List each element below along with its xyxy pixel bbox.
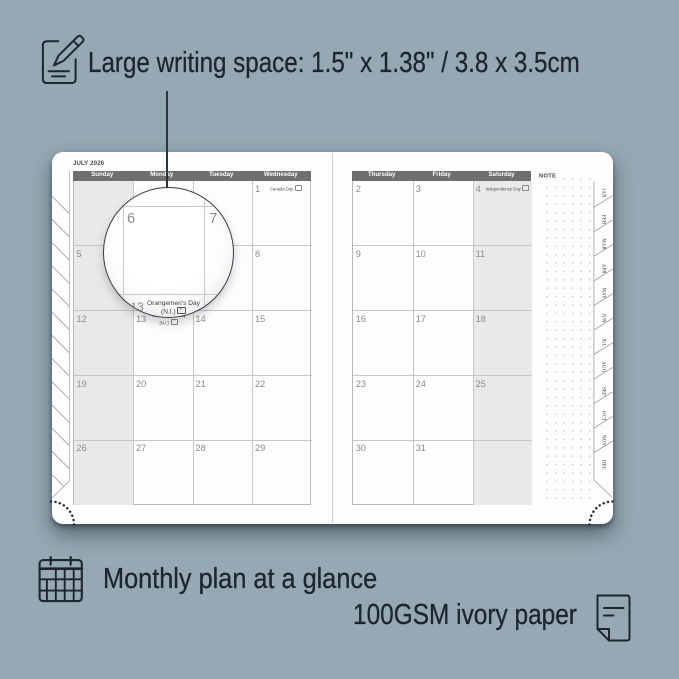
svg-text:OCT: OCT — [600, 411, 605, 421]
svg-text:MAR: MAR — [600, 238, 605, 250]
svg-text:SEP: SEP — [600, 387, 605, 396]
svg-text:FEB: FEB — [600, 215, 605, 224]
svg-text:JUL: JUL — [600, 338, 605, 347]
svg-text:NOTE: NOTE — [539, 174, 556, 180]
svg-text:JUN: JUN — [600, 313, 605, 323]
svg-text:JAN: JAN — [600, 188, 605, 198]
svg-text:MAY: MAY — [600, 288, 605, 300]
svg-text:AUG: AUG — [600, 361, 605, 372]
svg-text:APR: APR — [600, 264, 605, 275]
svg-text:DEC: DEC — [600, 460, 605, 470]
svg-text:NOV: NOV — [600, 435, 605, 446]
